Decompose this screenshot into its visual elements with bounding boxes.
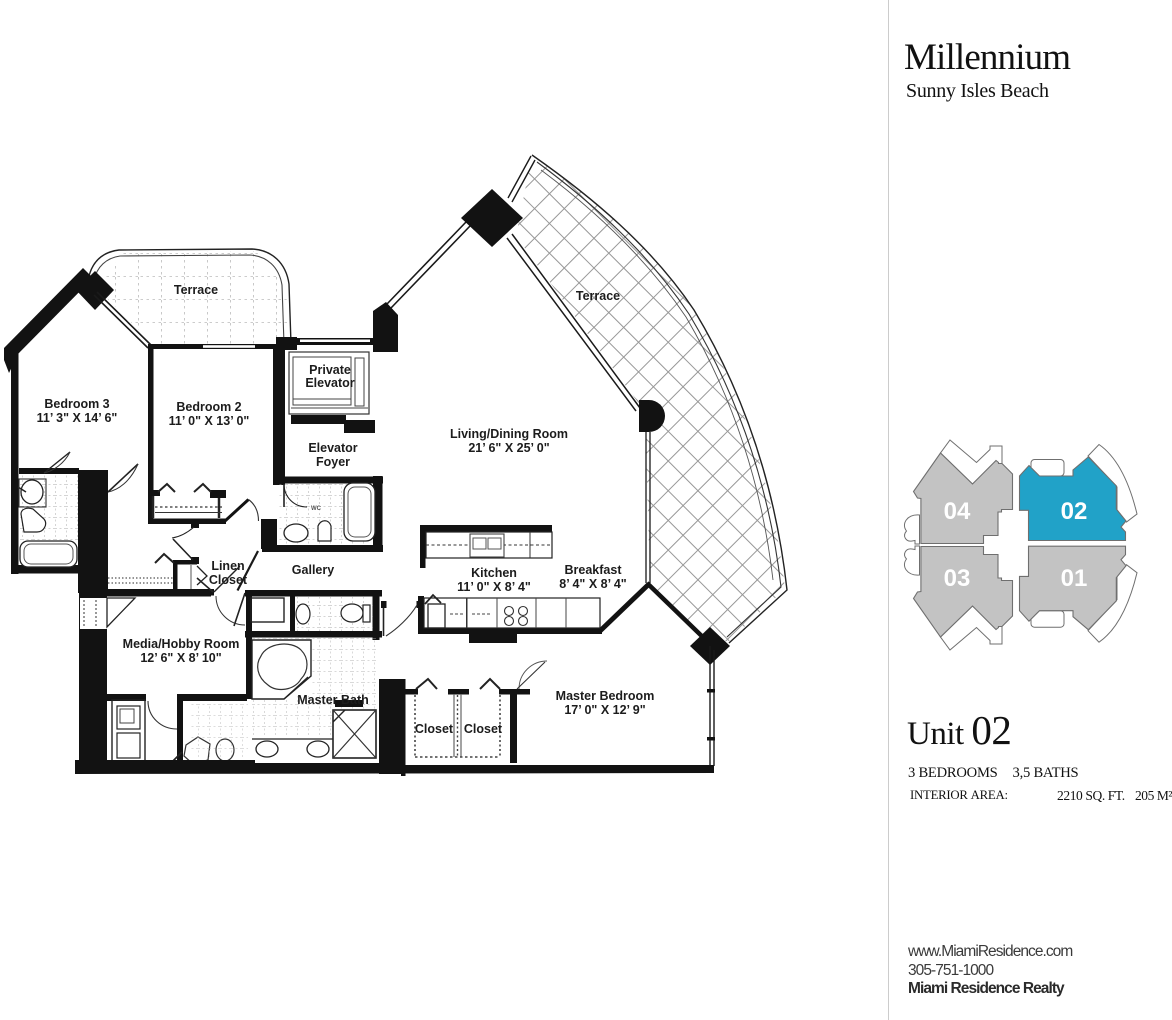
svg-text:Foyer: Foyer [316,455,350,469]
svg-text:11’ 0" X 13’ 0": 11’ 0" X 13’ 0" [169,414,250,428]
svg-text:Gallery: Gallery [292,563,334,577]
svg-text:02: 02 [1061,498,1088,525]
svg-text:01: 01 [1061,565,1088,592]
svg-text:11’ 3" X 14’ 6": 11’ 3" X 14’ 6" [37,411,118,425]
svg-text:8’ 4" X 8’ 4": 8’ 4" X 8’ 4" [559,577,627,591]
svg-text:12’ 6" X 8’ 10": 12’ 6" X 8’ 10" [140,651,221,665]
svg-text:Terrace: Terrace [174,283,218,297]
svg-text:Bedroom 3: Bedroom 3 [44,397,109,411]
svg-text:Closet: Closet [464,722,503,736]
svg-text:04: 04 [944,498,971,525]
svg-text:Master Bedroom: Master Bedroom [556,689,655,703]
svg-text:Master Bath: Master Bath [297,693,369,707]
svg-text:WC: WC [311,506,322,512]
svg-text:Kitchen: Kitchen [471,566,517,580]
svg-text:03: 03 [944,565,971,592]
svg-text:Bedroom 2: Bedroom 2 [176,400,241,414]
svg-text:Private: Private [309,363,351,377]
svg-text:Elevator: Elevator [305,376,354,390]
svg-text:17’ 0" X 12’ 9": 17’ 0" X 12’ 9" [564,703,645,717]
svg-text:21’ 6" X 25’ 0": 21’ 6" X 25’ 0" [468,441,549,455]
svg-text:Closet: Closet [415,722,454,736]
svg-text:11’ 0" X 8’ 4": 11’ 0" X 8’ 4" [457,580,531,594]
svg-text:Terrace: Terrace [576,289,620,303]
svg-text:Elevator: Elevator [308,441,357,455]
svg-text:Breakfast: Breakfast [565,563,623,577]
svg-text:Media/Hobby Room: Media/Hobby Room [123,637,240,651]
svg-text:Living/Dining Room: Living/Dining Room [450,427,568,441]
